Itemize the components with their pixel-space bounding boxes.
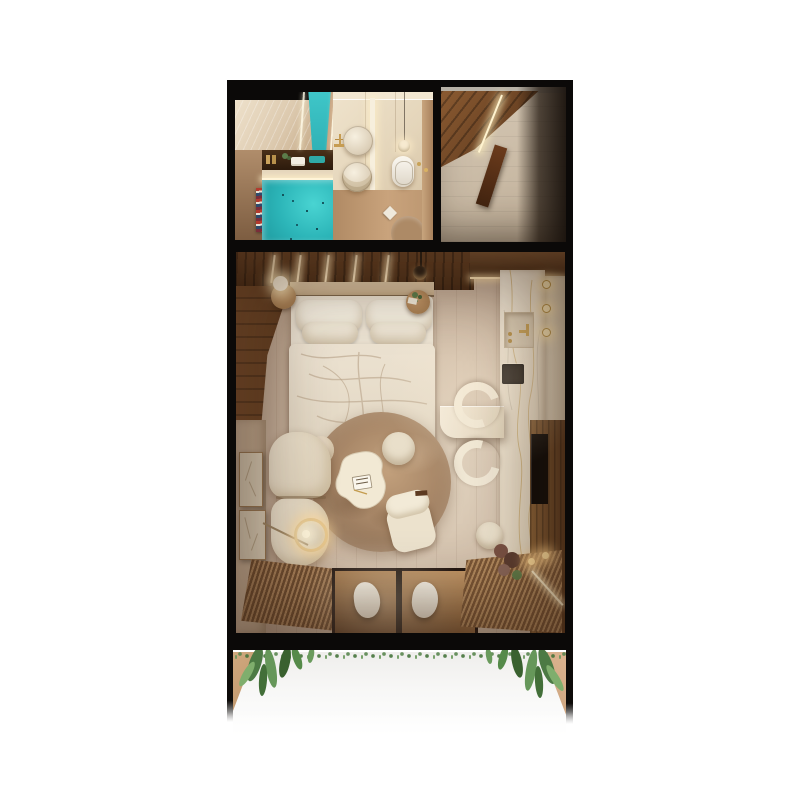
toilet-seat [395, 161, 413, 185]
wall-artwork [239, 452, 263, 507]
teal-tray [309, 156, 325, 163]
candle-light [542, 552, 549, 559]
balcony [227, 650, 573, 750]
studio-room [236, 252, 565, 633]
floorplan-render [0, 0, 800, 800]
toilet [392, 156, 414, 187]
pillow [302, 322, 358, 344]
marble-backsplash [545, 276, 565, 426]
ceiling-strip [333, 92, 433, 99]
pillow [370, 322, 426, 344]
shelf-plant [282, 153, 288, 159]
dried-flowers [498, 564, 510, 576]
slatted-deck-left [241, 558, 345, 631]
gold-bottles [266, 155, 270, 164]
glass-mullion [396, 568, 402, 633]
towel-stack [291, 157, 305, 166]
hanging-plants-right [455, 650, 565, 714]
flush-button [417, 162, 421, 166]
black-pendant-lamp [413, 266, 427, 280]
leather-strap [415, 490, 427, 496]
gold-door-handle [424, 168, 428, 172]
glowing-ring-floor-lamp [294, 518, 328, 552]
gold-faucet [339, 134, 341, 146]
sofa-seam [276, 496, 326, 499]
pendant-light [398, 140, 410, 152]
curved-sofa-module [269, 432, 331, 498]
sphere-table-lamp [273, 276, 288, 291]
white-fade [227, 712, 573, 750]
black-cooktop [502, 364, 524, 384]
frame-notch [235, 92, 318, 100]
candle-light [528, 558, 535, 565]
wall-seam [395, 92, 396, 152]
entry-hall [441, 87, 566, 242]
vessel-sink [343, 126, 373, 156]
wall-sconce [542, 328, 551, 337]
hanging-plants-left [237, 650, 347, 710]
wall-sconce [542, 304, 551, 313]
pendant-cord [420, 252, 422, 267]
wall-sconce [542, 280, 551, 289]
round-pouf [382, 432, 415, 465]
gold-faucet [519, 330, 528, 333]
tv-panel [531, 434, 548, 504]
lamp-light-core [302, 530, 310, 538]
green-sprig [512, 570, 522, 580]
shadowed-corner [517, 87, 566, 242]
pendant-cord [404, 92, 405, 140]
faucet-knobs [508, 332, 512, 336]
water-speckles [282, 194, 284, 196]
travertine-wall [235, 100, 320, 154]
bathroom [235, 92, 433, 240]
vessel-sink [342, 162, 372, 192]
wall-artwork [239, 510, 266, 560]
